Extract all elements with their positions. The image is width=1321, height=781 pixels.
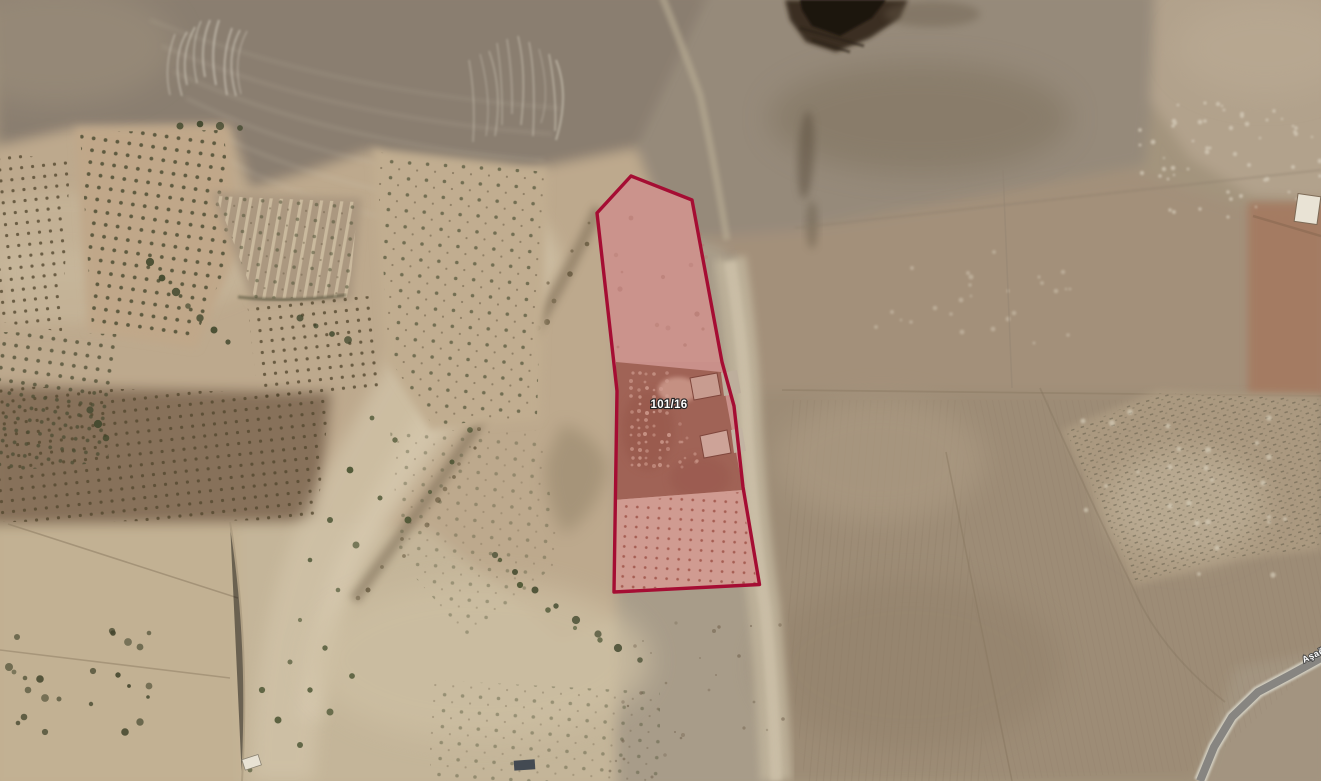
- svg-text:101/16: 101/16: [651, 399, 688, 411]
